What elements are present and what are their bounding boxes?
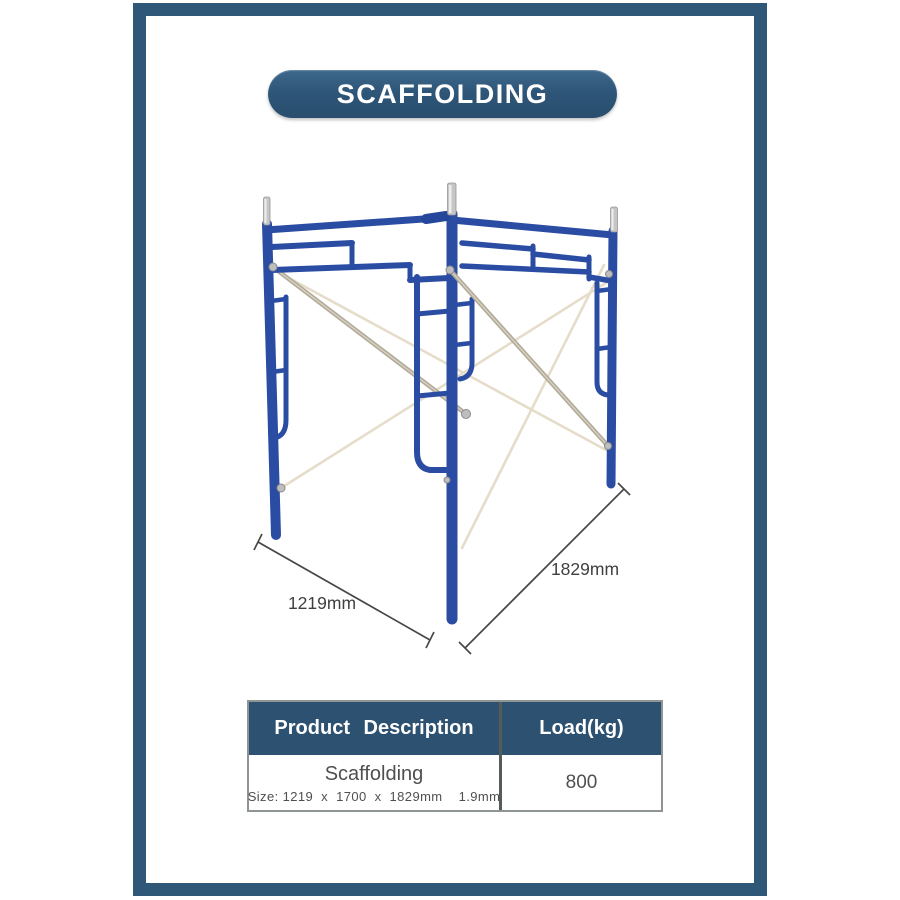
load-value: 800 xyxy=(566,772,598,794)
product-description-cell: Scaffolding Size: 1219 x 1700 x 1829mm 1… xyxy=(249,755,499,810)
length-dimension-label: 1829mm xyxy=(551,559,619,579)
product-size: Size: 1219 x 1700 x 1829mm 1.9mm xyxy=(248,789,501,804)
product-spec-table: Product Description Load(kg) Scaffolding… xyxy=(247,700,663,812)
product-name: Scaffolding xyxy=(325,762,424,787)
width-dimension-label: 1219mm xyxy=(288,593,356,613)
header-load-kg: Load(kg) xyxy=(499,702,661,755)
page-title: SCAFFOLDING xyxy=(337,79,549,110)
table-header-row: Product Description Load(kg) xyxy=(249,702,661,755)
table-row: Scaffolding Size: 1219 x 1700 x 1829mm 1… xyxy=(249,755,661,810)
load-cell: 800 xyxy=(499,755,661,810)
scaffolding-illustration: 1219mm 1829mm xyxy=(228,170,672,670)
brace-anchors xyxy=(269,263,613,492)
header-product-description: Product Description xyxy=(249,702,499,755)
catalog-page: SCAFFOLDING xyxy=(0,0,900,900)
title-banner: SCAFFOLDING xyxy=(268,70,617,118)
